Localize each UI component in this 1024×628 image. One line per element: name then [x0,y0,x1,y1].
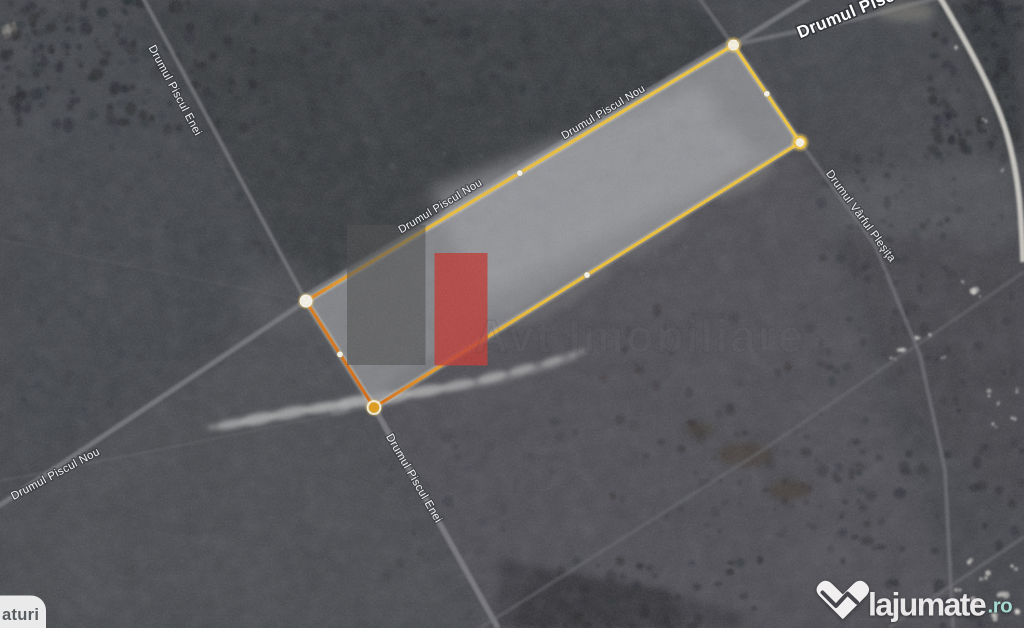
svg-text:lajumate: lajumate [868,587,986,623]
svg-text:.ro: .ro [988,595,1013,618]
svg-text:aturi: aturi [2,606,39,624]
